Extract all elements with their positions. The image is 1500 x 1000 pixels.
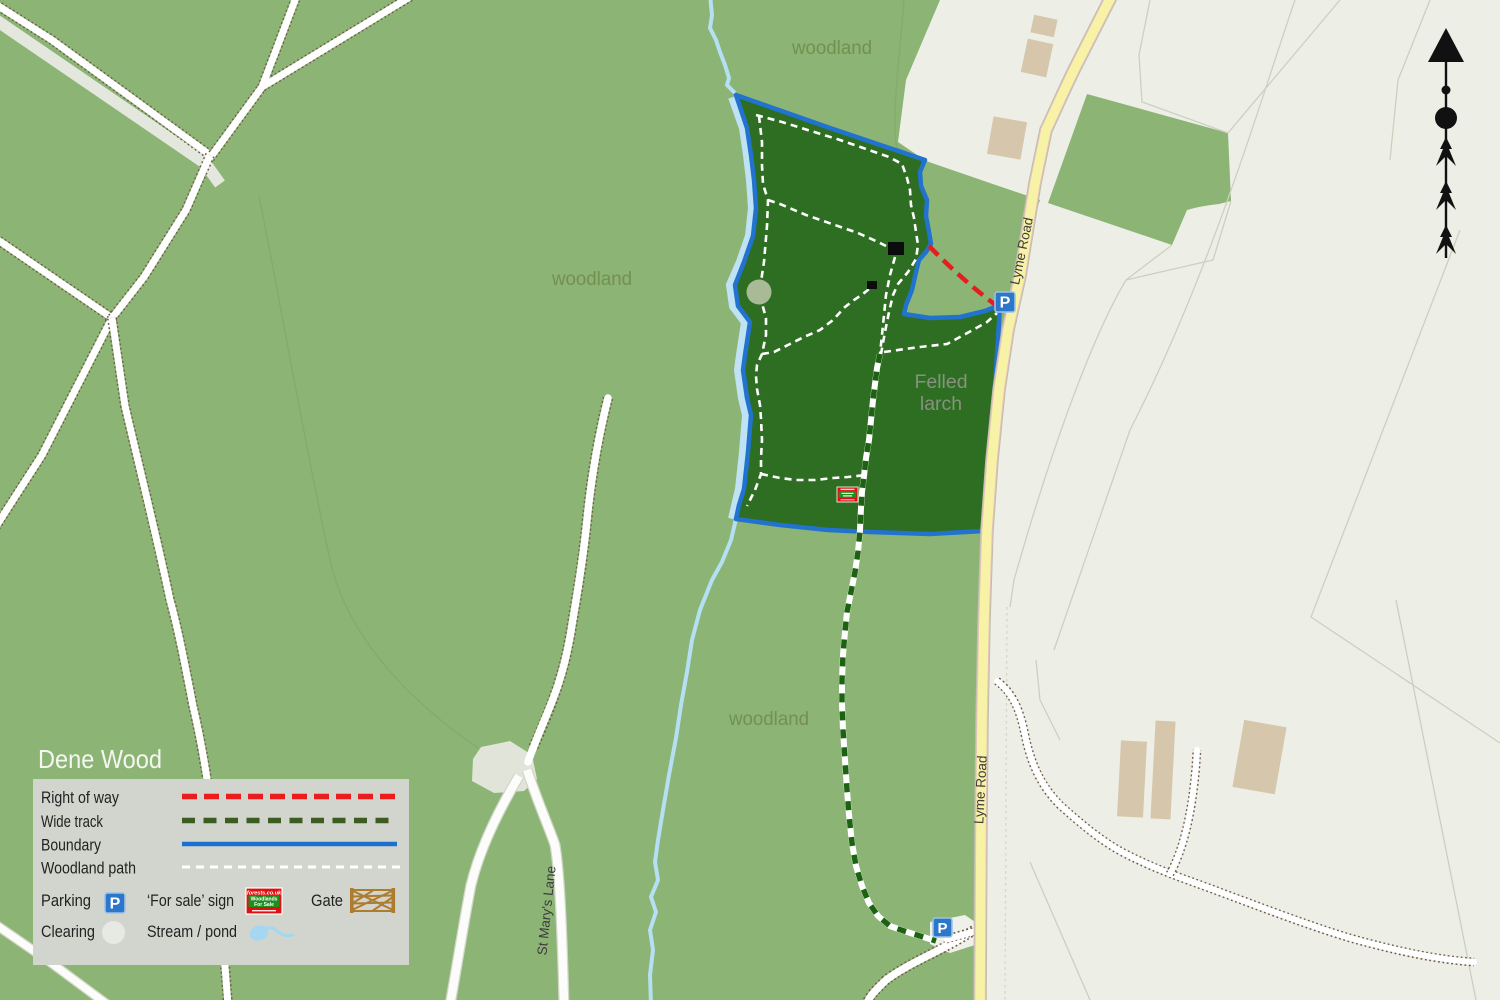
svg-text:Right of way: Right of way [41,788,119,807]
svg-text:For Sale: For Sale [254,902,274,908]
svg-text:Felled: Felled [914,371,967,393]
svg-text:Parking: Parking [41,891,91,910]
svg-text:P: P [937,920,947,937]
svg-text:P: P [110,896,121,913]
svg-text:Gate: Gate [311,891,343,910]
svg-text:Stream / pond: Stream / pond [147,922,237,941]
svg-text:woodland: woodland [551,269,632,290]
svg-text:Clearing: Clearing [41,922,95,941]
svg-text:Dene Wood: Dene Wood [38,744,162,774]
svg-text:Wide track: Wide track [41,812,103,831]
svg-text:larch: larch [920,393,962,415]
svg-text:P: P [1000,295,1011,312]
svg-text:woodland: woodland [728,709,809,730]
svg-text:woodland: woodland [791,38,872,59]
svg-text:Boundary: Boundary [41,836,101,855]
svg-text:Woodland path: Woodland path [41,859,136,878]
svg-text:‘For sale’ sign: ‘For sale’ sign [147,891,234,910]
